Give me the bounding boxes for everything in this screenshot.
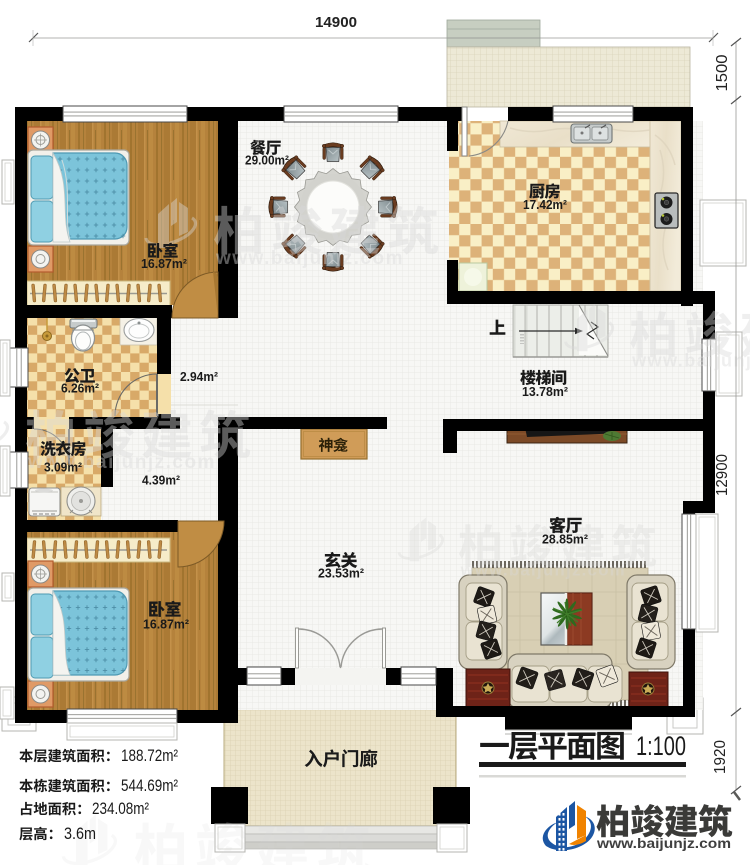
svg-text:1:100: 1:100 <box>636 731 686 761</box>
svg-text:www.baijunjz.com: www.baijunjz.com <box>631 350 750 370</box>
svg-text:3.09m²: 3.09m² <box>44 461 82 475</box>
svg-text:www.baijunjz.com: www.baijunjz.com <box>215 248 404 269</box>
svg-text:6.26m²: 6.26m² <box>61 382 99 396</box>
svg-text:3.6m: 3.6m <box>64 825 96 843</box>
svg-text:188.72m²: 188.72m² <box>121 747 178 765</box>
svg-text:28.85m²: 28.85m² <box>542 533 588 547</box>
svg-text:2.94m²: 2.94m² <box>180 370 218 384</box>
svg-text:www.baijunjz.com: www.baijunjz.com <box>596 836 731 851</box>
svg-text:234.08m²: 234.08m² <box>92 800 149 818</box>
svg-text:17.42m²: 17.42m² <box>523 198 567 212</box>
svg-text:4.39m²: 4.39m² <box>142 474 180 488</box>
svg-text:www.baijunjz.com: www.baijunjz.com <box>460 560 626 579</box>
svg-text:1500: 1500 <box>714 54 731 91</box>
svg-text:23.53m²: 23.53m² <box>318 567 364 581</box>
svg-text:544.69m²: 544.69m² <box>121 777 178 795</box>
svg-text:13.78m²: 13.78m² <box>522 385 568 399</box>
svg-text:16.87m²: 16.87m² <box>141 257 187 271</box>
svg-text:12900: 12900 <box>714 454 731 496</box>
svg-text:16.87m²: 16.87m² <box>143 618 189 632</box>
svg-text:29.00m²: 29.00m² <box>245 154 289 168</box>
svg-text:1920: 1920 <box>712 740 729 774</box>
svg-text:14900: 14900 <box>315 14 357 31</box>
